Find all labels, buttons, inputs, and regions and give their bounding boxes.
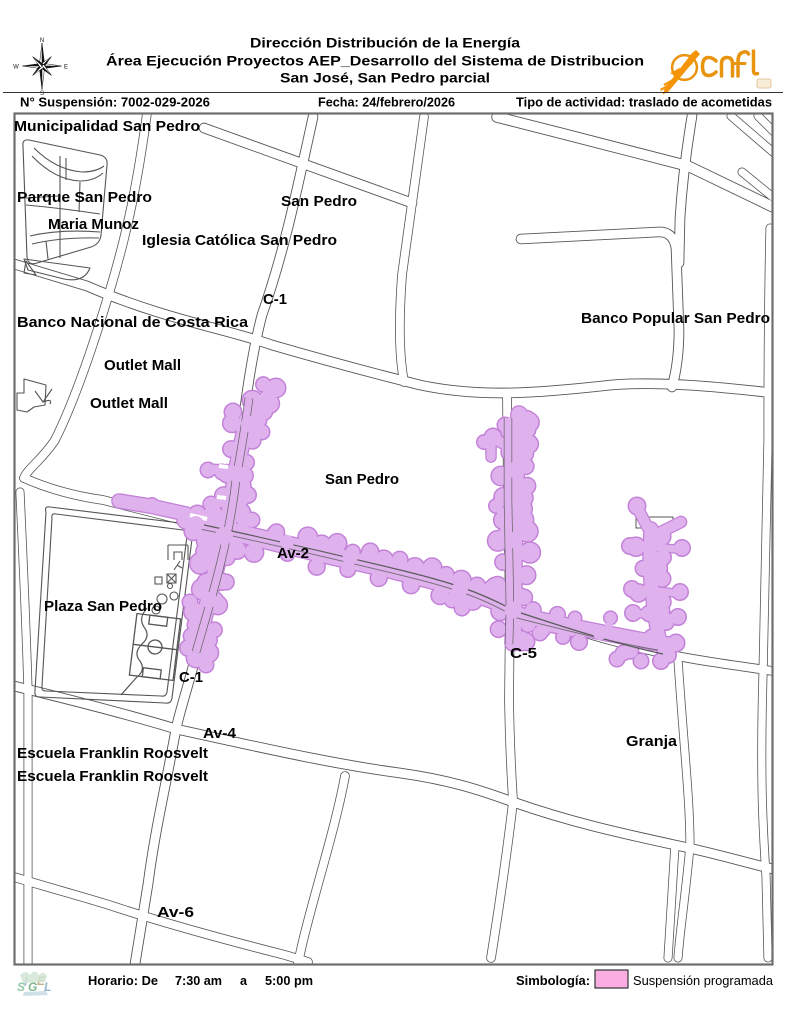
svg-text:Parque San Pedro: Parque San Pedro [17,189,152,206]
svg-text:San José, San Pedro parcial: San José, San Pedro parcial [280,70,490,86]
svg-text:Av-4: Av-4 [203,725,237,742]
svg-text:N: N [40,38,44,44]
svg-text:Av-2: Av-2 [277,545,309,562]
svg-text:Banco Popular San Pedro: Banco Popular San Pedro [581,310,770,327]
svg-text:Maria Munoz: Maria Munoz [48,216,139,233]
svg-text:Simbología:: Simbología: [516,973,590,988]
svg-text:Tipo de actividad: traslado de: Tipo de actividad: traslado de acometida… [516,95,772,110]
svg-text:Suspensión programada: Suspensión programada [633,973,774,988]
svg-text:Escuela Franklin Roosvelt: Escuela Franklin Roosvelt [17,745,208,762]
svg-text:Plaza San Pedro: Plaza San Pedro [44,598,162,615]
svg-text:Outlet Mall: Outlet Mall [90,395,168,412]
svg-text:Outlet Mall: Outlet Mall [104,357,181,374]
svg-text:E: E [64,65,68,71]
svg-text:San Pedro: San Pedro [325,471,399,488]
svg-text:Área Ejecución Proyectos AEP_D: Área Ejecución Proyectos AEP_Desarrollo … [106,53,644,69]
svg-text:7:30 am: 7:30 am [175,974,222,988]
svg-text:Dirección Distribución de la E: Dirección Distribución de la Energía [250,35,520,51]
svg-text:Municipalidad San Pedro: Municipalidad San Pedro [14,118,200,135]
svg-text:Horario: De: Horario: De [88,974,158,988]
svg-text:San Pedro: San Pedro [281,193,357,210]
svg-text:C-1: C-1 [179,669,203,686]
svg-text:Escuela Franklin Roosvelt: Escuela Franklin Roosvelt [17,768,208,785]
svg-text:C-5: C-5 [510,645,537,662]
svg-text:a: a [240,974,248,988]
svg-text:Granja: Granja [626,733,678,750]
svg-text:W: W [13,65,19,71]
svg-text:5:00 pm: 5:00 pm [265,974,313,988]
svg-text:Av-6: Av-6 [157,904,194,921]
svg-text:Iglesia Católica San Pedro: Iglesia Católica San Pedro [142,232,337,249]
svg-text:N° Suspensión: 7002-029-2026: N° Suspensión: 7002-029-2026 [20,95,210,110]
svg-text:C-1: C-1 [263,291,287,308]
svg-text:Banco Nacional de Costa Rica: Banco Nacional de Costa Rica [17,314,249,331]
svg-text:Fecha: 24/febrero/2026: Fecha: 24/febrero/2026 [318,95,455,110]
